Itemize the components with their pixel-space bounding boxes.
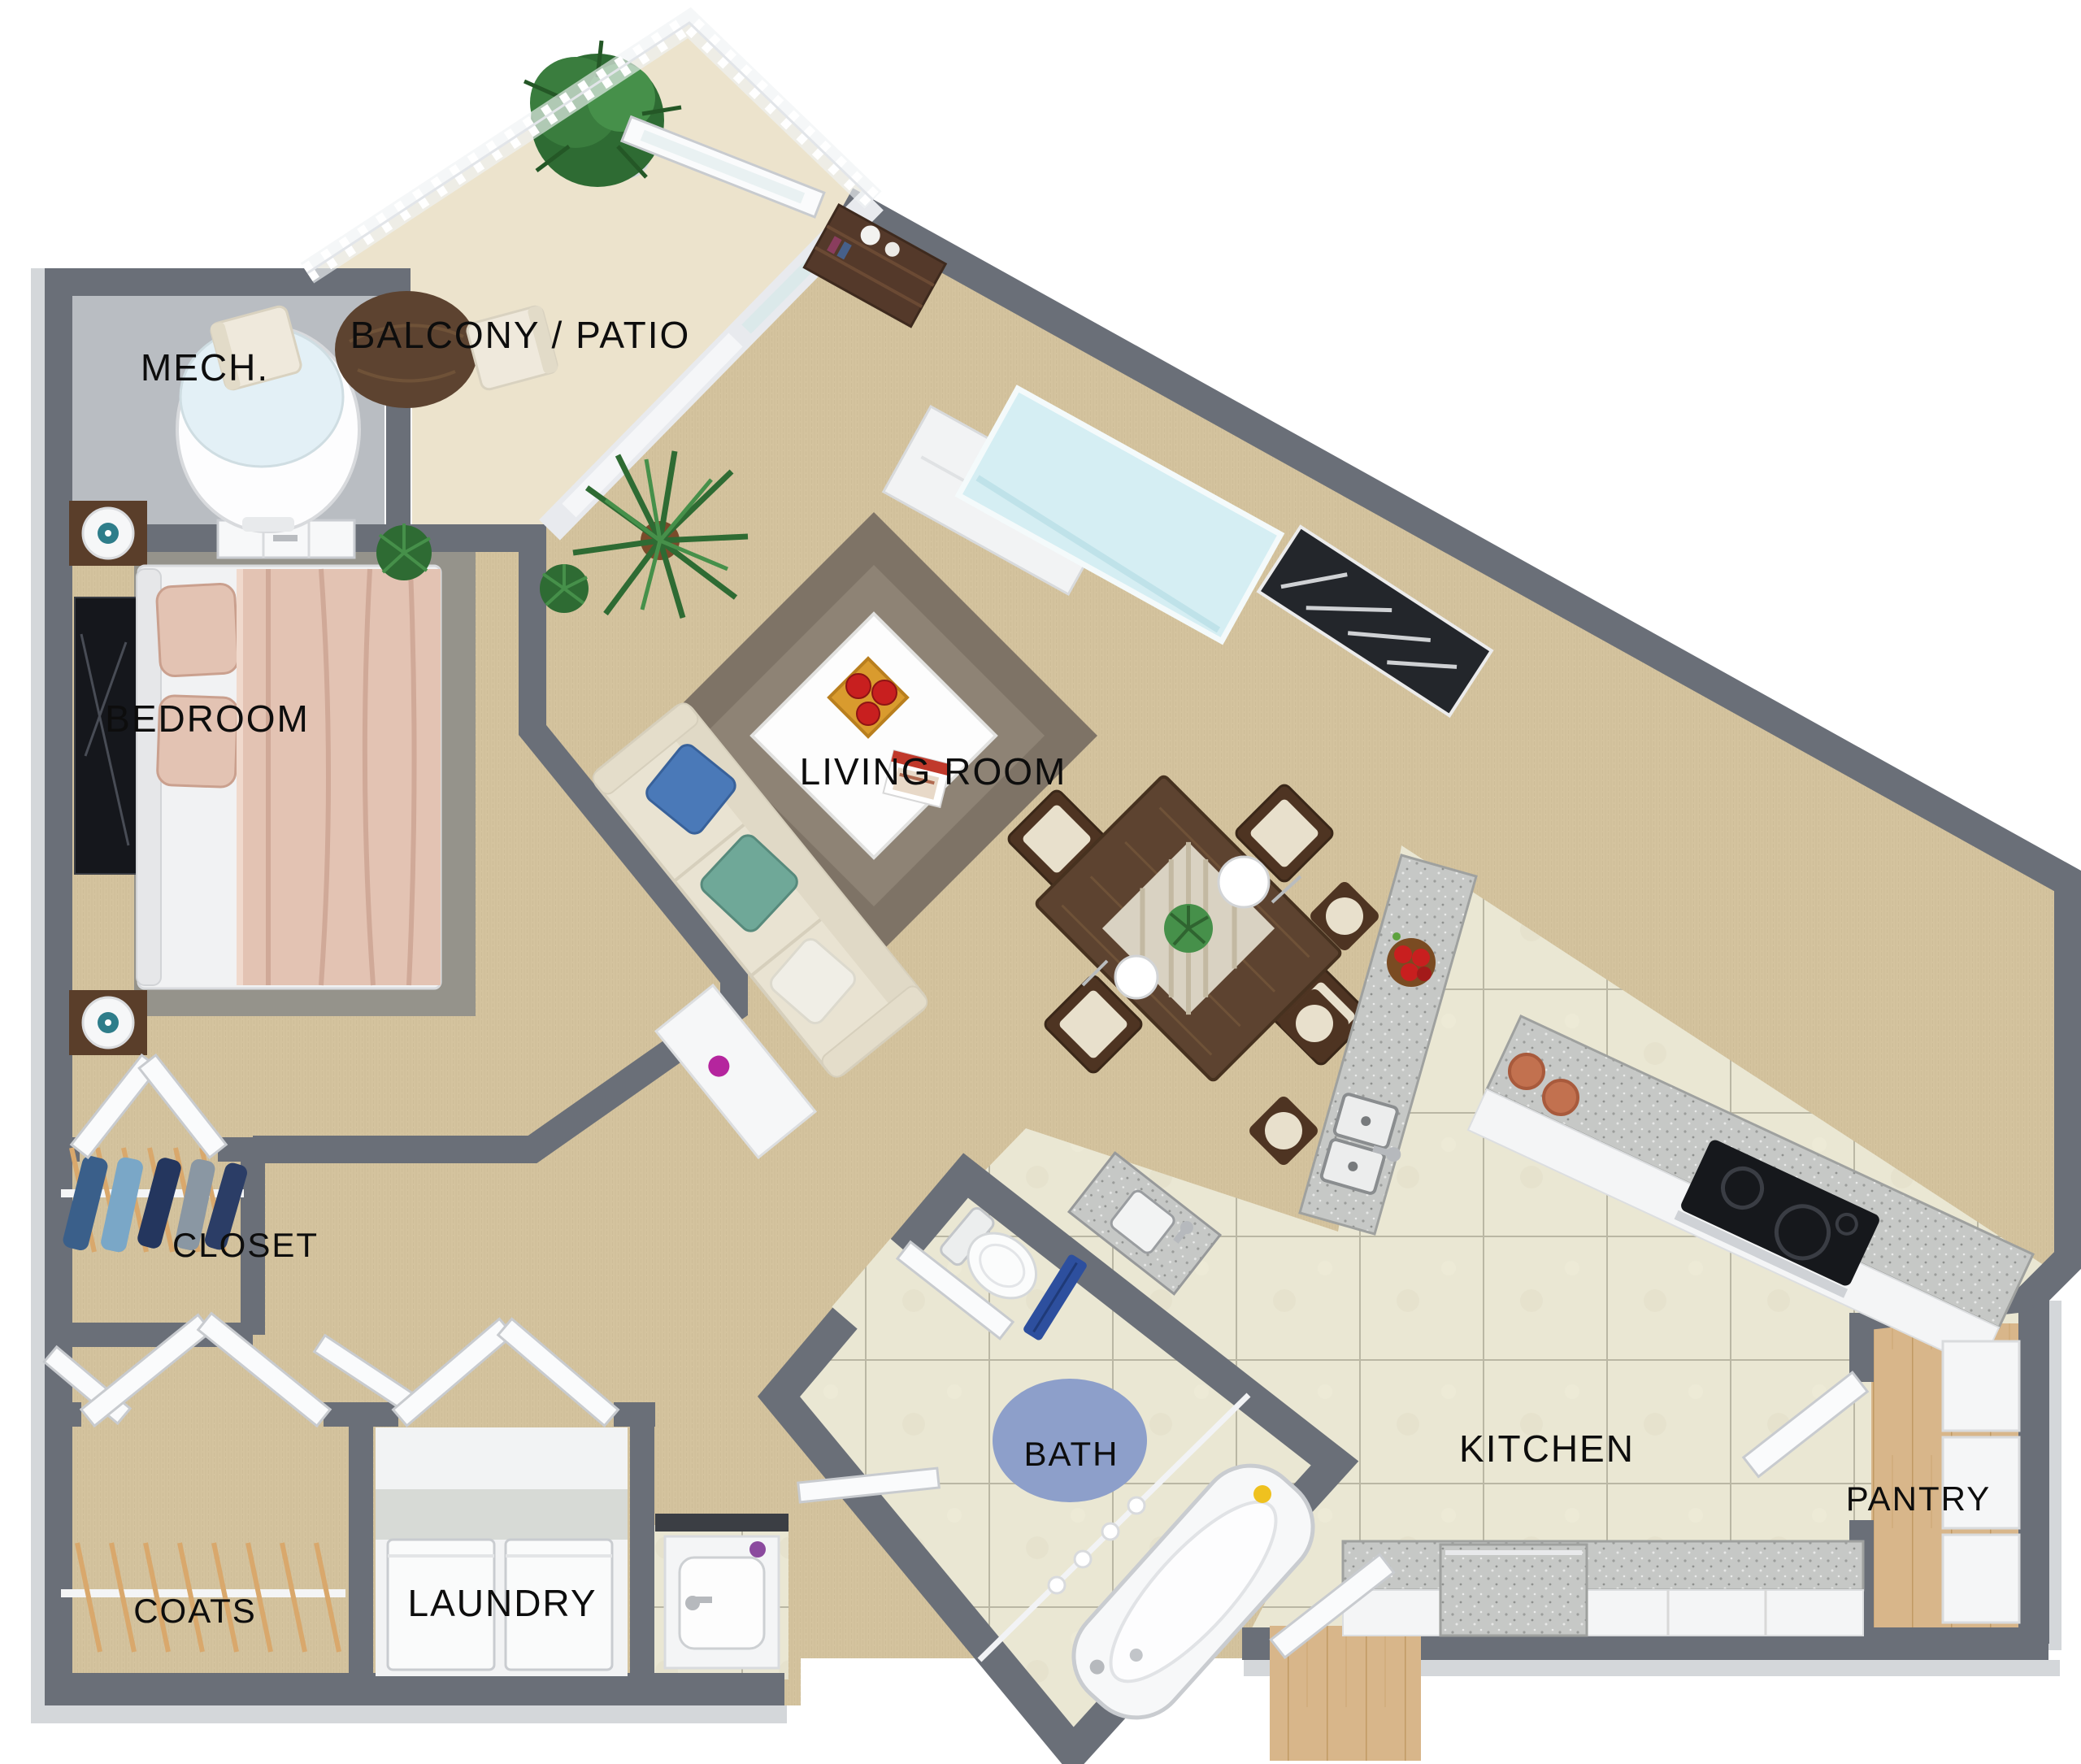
floorplan-page: MECH. BALCONY / PATIO BEDROOM LIVING ROO… <box>0 0 2081 1764</box>
dishwasher <box>1440 1545 1587 1636</box>
pot <box>1544 1080 1578 1114</box>
living-small-plant <box>540 564 589 613</box>
room-label-mech: MECH. <box>141 346 269 389</box>
room-label-coats: COATS <box>133 1592 257 1630</box>
room-label-kitchen: KITCHEN <box>1459 1427 1635 1470</box>
soap-dispenser <box>749 1541 766 1558</box>
room-label-pantry: PANTRY <box>1846 1479 1991 1518</box>
kitchen-bottom-counter <box>1343 1541 1863 1636</box>
floorplan-canvas: MECH. BALCONY / PATIO BEDROOM LIVING ROO… <box>0 0 2081 1764</box>
pot <box>1510 1054 1544 1088</box>
room-label-closet: CLOSET <box>172 1226 319 1264</box>
rubber-duck <box>1253 1485 1271 1503</box>
laundry-room <box>376 1427 628 1676</box>
room-label-bedroom: BEDROOM <box>105 697 310 740</box>
nightstand <box>69 501 147 566</box>
nightstand <box>69 990 147 1055</box>
powder-sink <box>655 1514 789 1668</box>
room-label-bath: BATH <box>1024 1435 1119 1473</box>
room-label-balcony: BALCONY / PATIO <box>350 314 691 356</box>
bed <box>137 566 441 988</box>
room-label-living: LIVING ROOM <box>800 750 1067 793</box>
room-label-laundry: LAUNDRY <box>408 1582 597 1624</box>
